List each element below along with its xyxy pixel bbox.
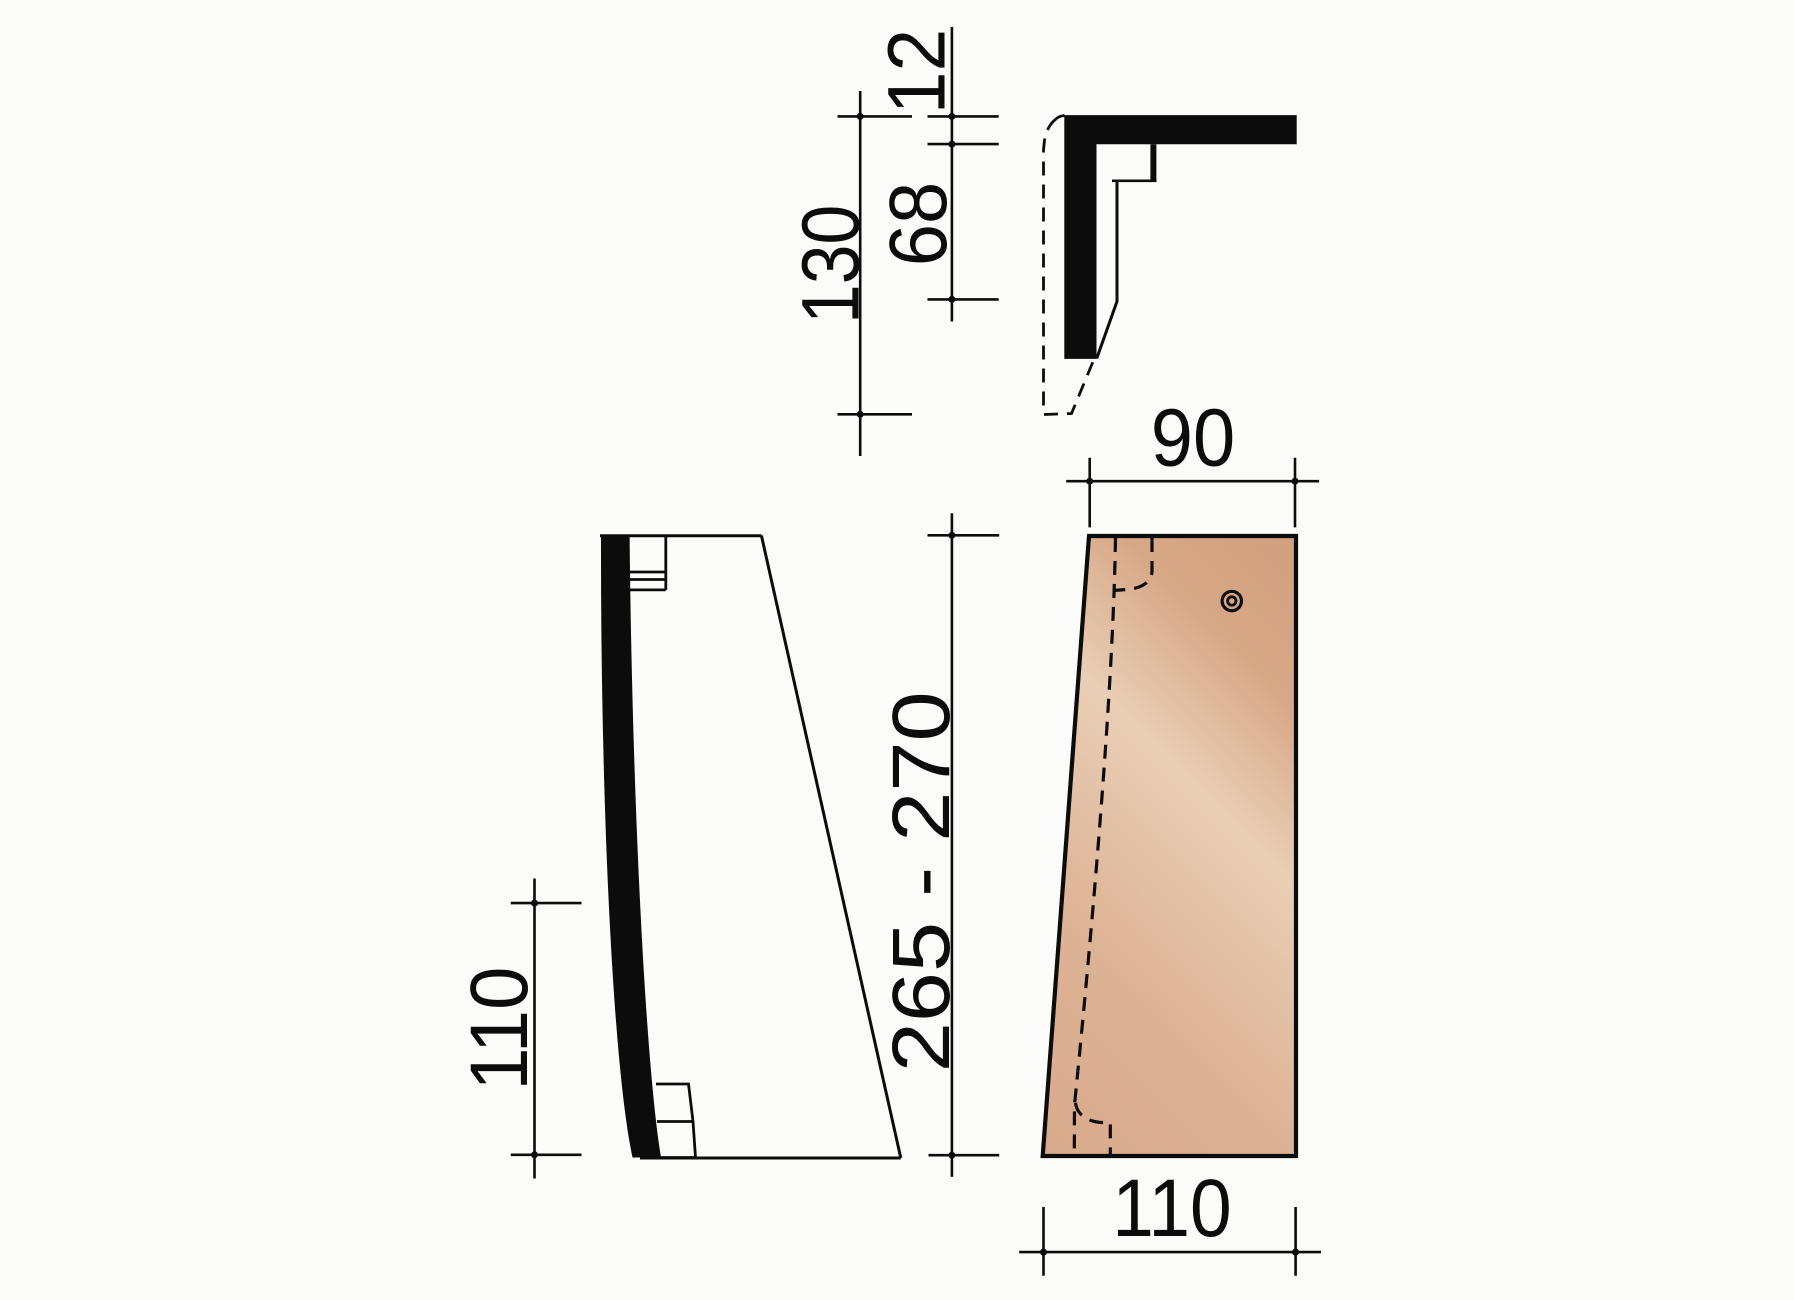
svg-text:90: 90	[1151, 393, 1235, 484]
svg-text:12: 12	[872, 29, 963, 114]
svg-text:110: 110	[1112, 1163, 1232, 1254]
svg-text:265 - 270: 265 - 270	[876, 691, 967, 1072]
svg-text:110: 110	[454, 967, 545, 1091]
svg-text:130: 130	[786, 205, 877, 324]
svg-text:68: 68	[873, 182, 964, 266]
